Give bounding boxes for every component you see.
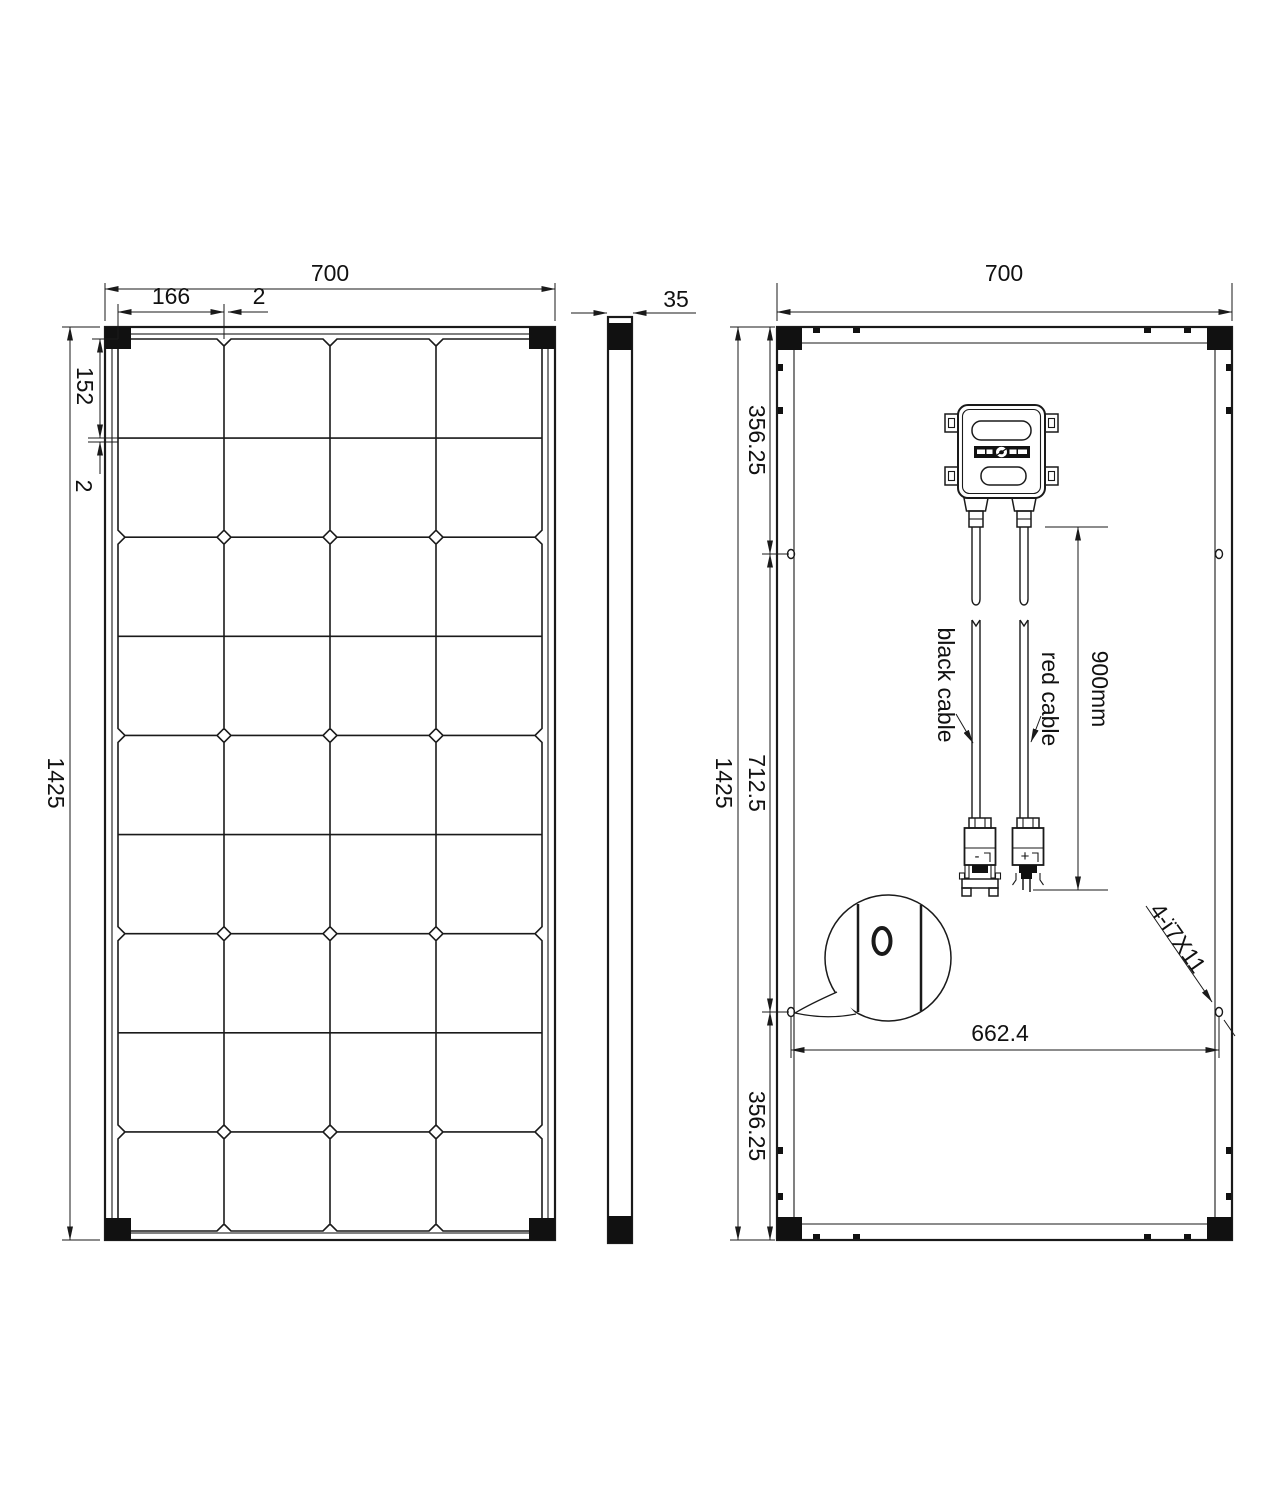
cable-glands — [964, 498, 1036, 527]
drain-slots — [778, 328, 1231, 1239]
brand-logo-band — [974, 446, 1030, 458]
cell-gap-left-dim: 2 — [71, 480, 97, 493]
junction-box-bottom-slot — [981, 467, 1026, 485]
corner-block — [1207, 327, 1232, 350]
side-profile — [608, 317, 632, 1243]
back-view — [777, 327, 1232, 1240]
minus-polarity-label: - — [975, 848, 980, 865]
thickness-dim: 35 — [663, 286, 689, 312]
balloon-tail — [795, 992, 856, 1017]
side-view — [608, 317, 632, 1243]
solar-cell-grid — [118, 339, 542, 1231]
corner-block — [777, 327, 802, 350]
junction-box — [945, 405, 1058, 527]
front-height-dim: 1425 — [43, 757, 69, 808]
detail-balloon — [795, 895, 951, 1021]
red-cable — [1020, 527, 1028, 818]
red-cable-label: red cable — [1037, 652, 1063, 747]
cable-labels: black cable red cable — [933, 627, 1063, 746]
corner-block — [777, 1217, 802, 1240]
side-corner-block-top — [608, 323, 632, 350]
black-cable — [972, 527, 980, 818]
corner-block — [1207, 1217, 1232, 1240]
magnified-hole — [874, 928, 891, 954]
mc4-connector-negative: - — [960, 818, 1001, 896]
corner-block — [529, 1218, 555, 1240]
junction-box-top-slot — [972, 421, 1031, 440]
mc4-connector-positive: + — [1013, 818, 1044, 892]
mounting-holes — [788, 550, 1223, 1017]
back-dimensions: 700 1425 356.25 712.5 356.25 900mm 662.4… — [711, 260, 1235, 1240]
front-dimensions: 700 166 2 152 2 1425 — [43, 260, 555, 1240]
corner-block — [529, 327, 555, 349]
hole-middle-dim: 712.5 — [744, 754, 770, 812]
front-view — [105, 327, 555, 1240]
side-dimensions: 35 — [571, 286, 696, 313]
back-height-dim: 1425 — [711, 757, 737, 808]
hole-top-offset-dim: 356.25 — [744, 405, 770, 475]
hole-spacing-dim: 662.4 — [971, 1020, 1029, 1046]
drawing-canvas: 700 166 2 152 2 1425 35 — [0, 0, 1276, 1500]
cell-width-dim: 166 — [152, 283, 190, 309]
cell-height-dim: 152 — [72, 367, 98, 405]
back-width-dim: 700 — [985, 260, 1023, 286]
cable-length-dim: 900mm — [1087, 651, 1113, 728]
black-cable-label: black cable — [933, 627, 959, 742]
hole-bottom-offset-dim: 356.25 — [744, 1091, 770, 1161]
plus-polarity-label: + — [1021, 848, 1030, 865]
back-frame-outer — [777, 327, 1232, 1240]
side-corner-block-bottom — [608, 1216, 632, 1243]
technical-drawing-svg: 700 166 2 152 2 1425 35 — [0, 0, 1276, 1500]
corner-block — [105, 1218, 131, 1240]
mounting-hole-note: 4-ï7X11 — [1145, 898, 1212, 978]
cell-gap-top-dim: 2 — [253, 283, 266, 309]
front-width-dim: 700 — [311, 260, 349, 286]
cables: - + — [960, 527, 1044, 896]
